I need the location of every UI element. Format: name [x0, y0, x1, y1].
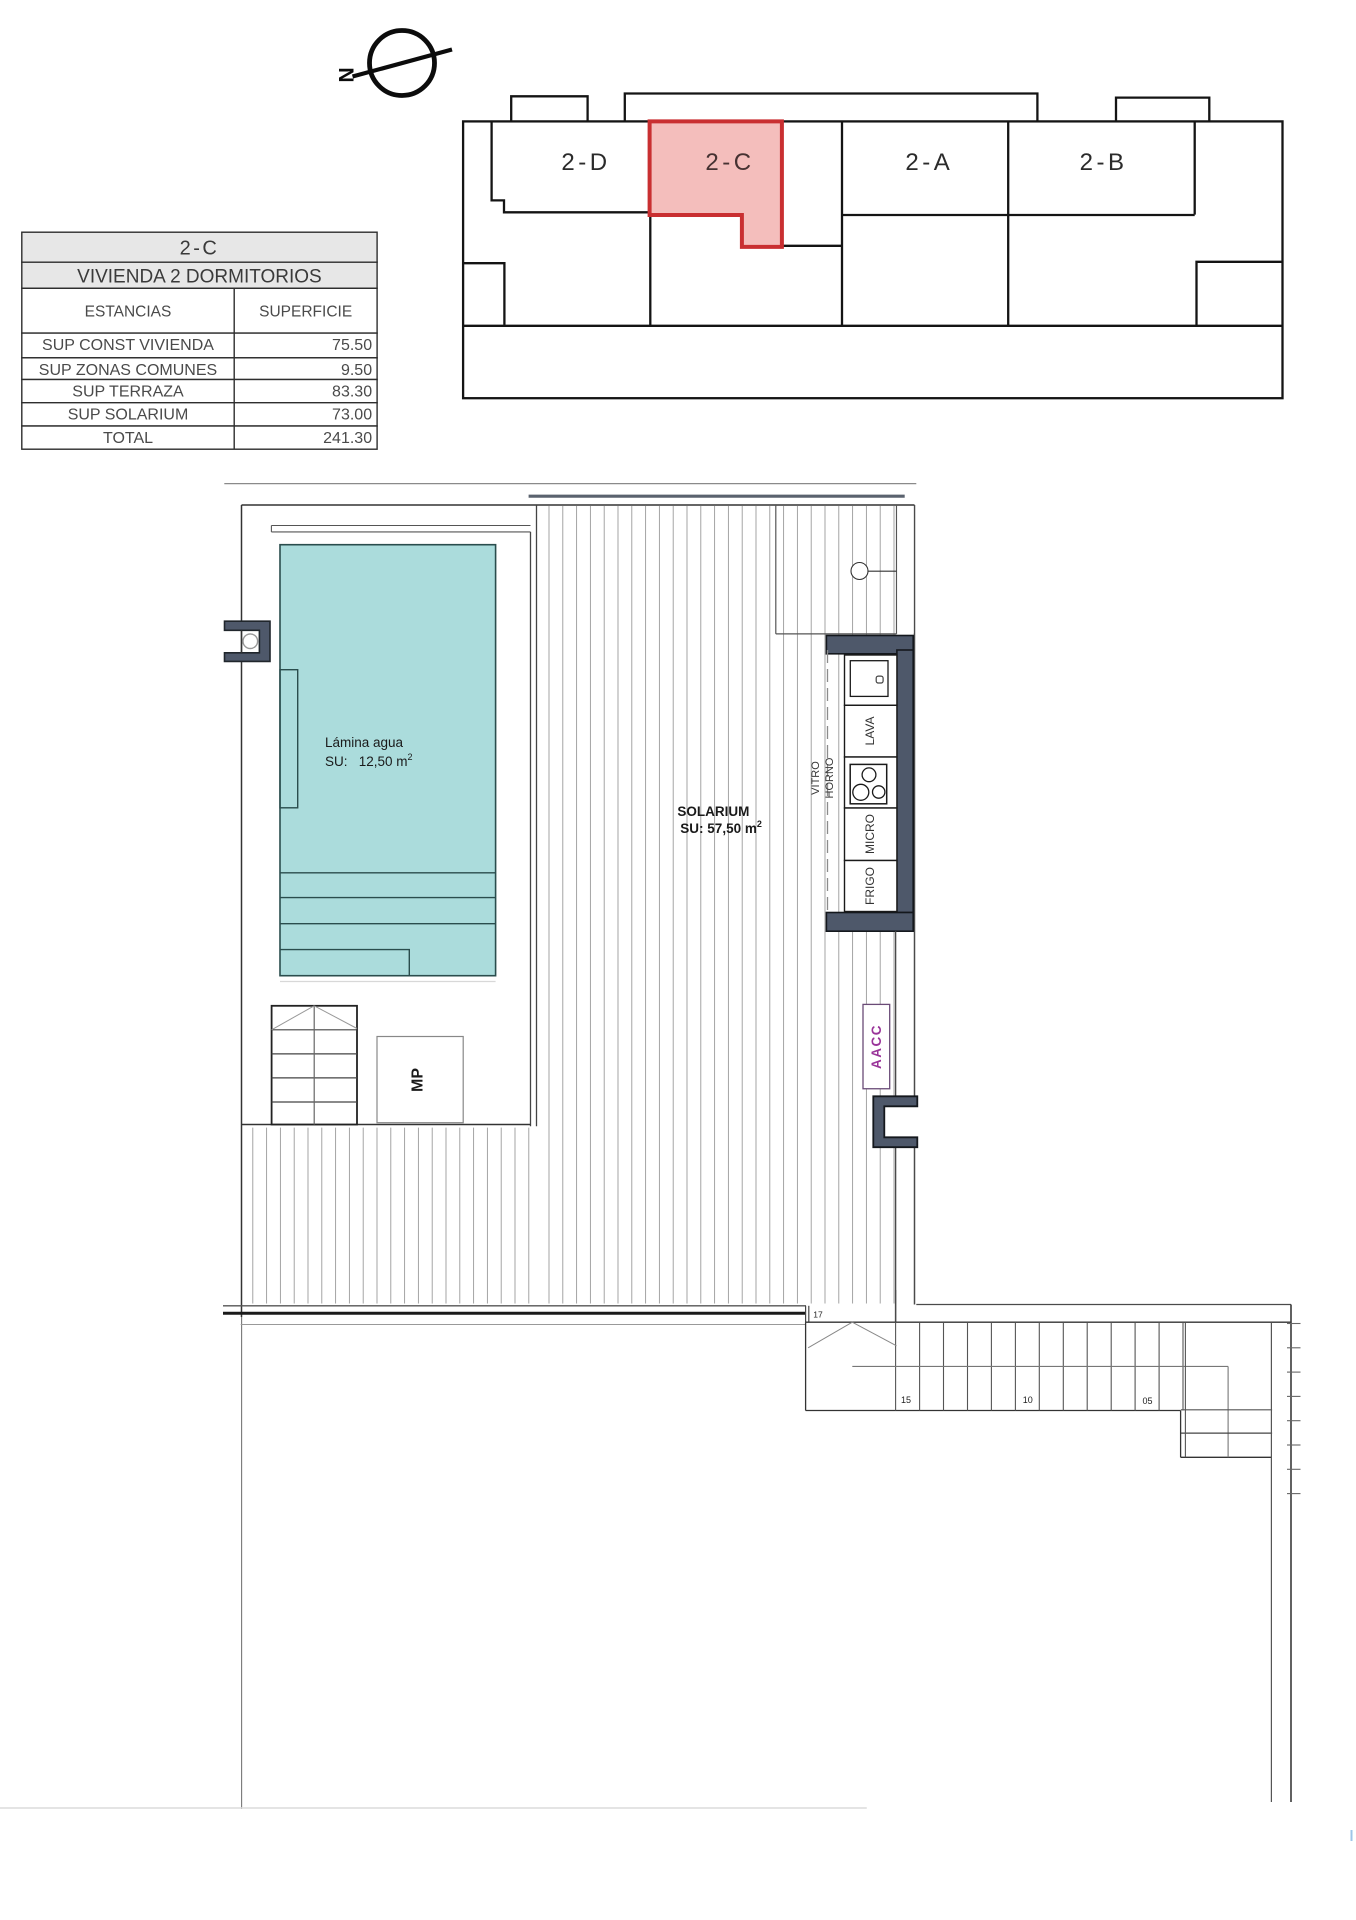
svg-text:2-C: 2-C	[180, 238, 220, 260]
svg-text:Lámina agua: Lámina agua	[325, 735, 404, 750]
svg-text:TOTAL: TOTAL	[103, 430, 153, 447]
svg-text:83.30: 83.30	[332, 384, 372, 401]
svg-text:2-C: 2-C	[705, 149, 754, 176]
svg-text:SUPERFICIE: SUPERFICIE	[259, 303, 352, 320]
svg-text:FRIGO: FRIGO	[863, 867, 877, 905]
svg-text:2-B: 2-B	[1080, 149, 1128, 176]
svg-text:05: 05	[1142, 1396, 1152, 1406]
svg-text:SU: 57,50 m2: SU: 57,50 m2	[680, 819, 762, 836]
svg-text:2-D: 2-D	[561, 149, 610, 176]
svg-text:HORNO: HORNO	[824, 757, 836, 798]
svg-text:N: N	[334, 67, 357, 82]
svg-text:241.30: 241.30	[323, 430, 372, 447]
svg-text:ESTANCIAS: ESTANCIAS	[85, 303, 172, 320]
svg-text:75.50: 75.50	[332, 337, 372, 354]
svg-text:SOLARIUM: SOLARIUM	[677, 804, 749, 819]
svg-text:9.50: 9.50	[341, 362, 372, 379]
svg-text:AACC: AACC	[869, 1024, 884, 1069]
svg-text:SU: 12,50 m2: SU: 12,50 m2	[325, 752, 413, 769]
svg-text:15: 15	[901, 1395, 911, 1405]
svg-text:SUP CONST VIVIENDA: SUP CONST VIVIENDA	[42, 337, 214, 354]
svg-text:73.00: 73.00	[332, 407, 372, 424]
svg-text:VITRO: VITRO	[810, 761, 822, 795]
svg-text:MP: MP	[410, 1068, 427, 1092]
svg-text:SUP SOLARIUM: SUP SOLARIUM	[68, 407, 189, 424]
svg-text:2-A: 2-A	[905, 149, 953, 176]
svg-text:VIVIENDA 2 DORMITORIOS: VIVIENDA 2 DORMITORIOS	[77, 267, 322, 288]
svg-text:17: 17	[813, 1310, 823, 1320]
svg-text:SUP ZONAS COMUNES: SUP ZONAS COMUNES	[39, 362, 217, 379]
svg-text:LAVA: LAVA	[863, 717, 877, 746]
svg-text:SUP TERRAZA: SUP TERRAZA	[72, 384, 184, 401]
svg-text:10: 10	[1023, 1395, 1033, 1405]
svg-text:MICRO: MICRO	[863, 814, 877, 854]
